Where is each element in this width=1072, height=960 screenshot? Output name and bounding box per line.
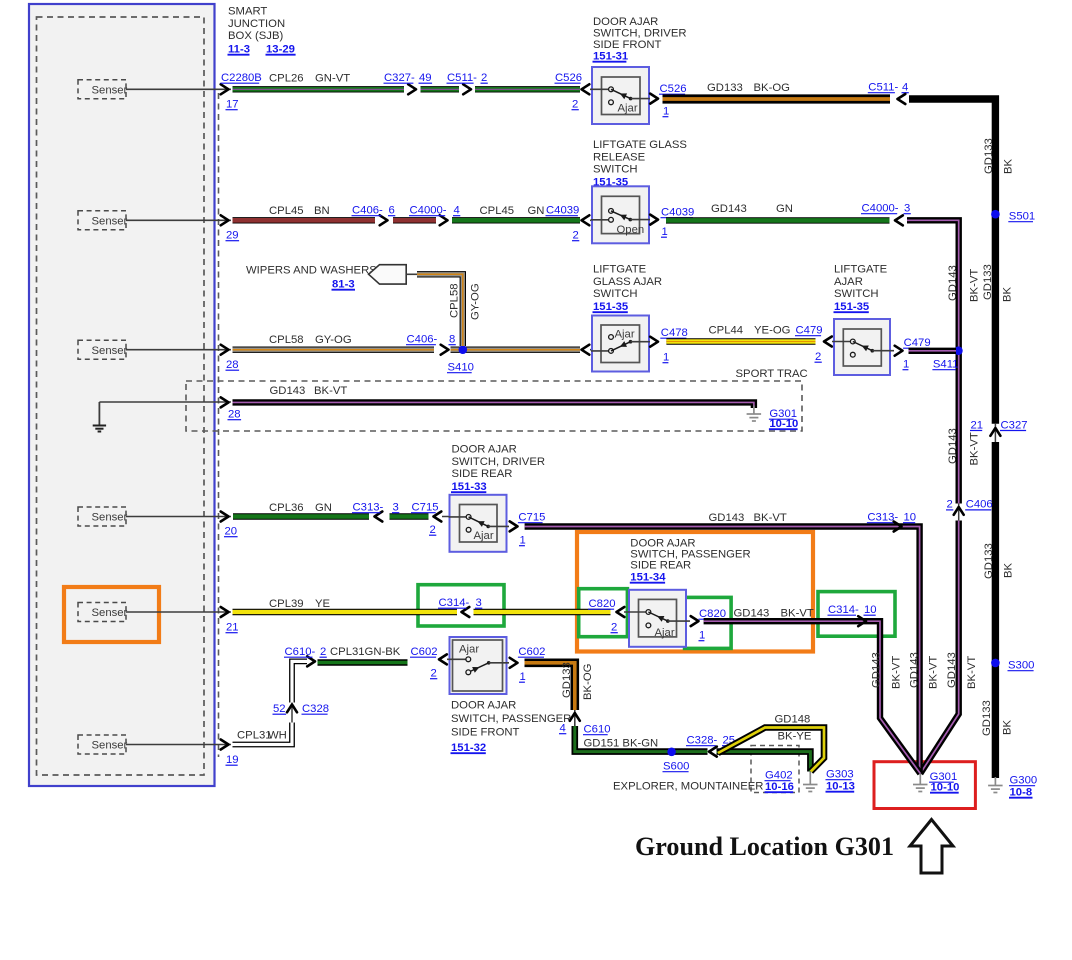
svg-text:SWITCH: SWITCH <box>593 164 638 176</box>
svg-text:1: 1 <box>663 352 669 364</box>
svg-text:BK-VT: BK-VT <box>314 385 347 397</box>
svg-text:GD133: GD133 <box>982 264 994 300</box>
svg-text:C479: C479 <box>796 325 823 337</box>
svg-text:EXPLORER, MOUNTAINEER: EXPLORER, MOUNTAINEER <box>613 781 763 793</box>
svg-text:Senser: Senser <box>92 85 128 97</box>
svg-text:151-34: 151-34 <box>630 572 666 584</box>
svg-text:GD143: GD143 <box>270 385 306 397</box>
svg-text:GD133: GD133 <box>981 700 993 736</box>
svg-text:Senser: Senser <box>92 512 128 524</box>
svg-text:G402: G402 <box>765 770 793 782</box>
svg-text:C610-: C610- <box>285 646 316 658</box>
svg-text:GD143: GD143 <box>734 608 770 620</box>
svg-text:BN: BN <box>314 205 330 217</box>
svg-text:13-29: 13-29 <box>266 44 295 56</box>
svg-text:S300: S300 <box>1008 660 1034 672</box>
svg-text:BK-VT: BK-VT <box>969 432 981 465</box>
svg-text:C511-: C511- <box>868 82 898 94</box>
svg-text:20: 20 <box>225 526 238 538</box>
svg-text:C314-: C314- <box>828 604 859 616</box>
svg-text:Ajar: Ajar <box>615 329 635 341</box>
svg-text:2: 2 <box>611 622 617 634</box>
svg-text:C4000-: C4000- <box>862 203 899 215</box>
svg-text:BK-VT: BK-VT <box>969 269 981 302</box>
svg-text:YE-OG: YE-OG <box>754 325 790 337</box>
svg-text:C602: C602 <box>411 646 438 658</box>
svg-text:SWITCH, PASSENGER: SWITCH, PASSENGER <box>451 713 571 725</box>
svg-text:CPL45: CPL45 <box>269 205 304 217</box>
svg-text:GY-OG: GY-OG <box>315 334 352 346</box>
svg-text:1: 1 <box>699 630 705 642</box>
svg-text:BOX (SJB): BOX (SJB) <box>228 30 283 42</box>
svg-text:LIFTGATE: LIFTGATE <box>593 264 647 276</box>
svg-text:C478: C478 <box>661 327 688 339</box>
svg-text:3: 3 <box>476 597 482 609</box>
svg-text:GN-VT: GN-VT <box>315 73 350 85</box>
svg-text:2: 2 <box>431 668 437 680</box>
svg-text:151-33: 151-33 <box>452 481 487 493</box>
svg-text:C4039: C4039 <box>661 207 694 219</box>
svg-text:GY-OG: GY-OG <box>470 283 482 320</box>
svg-text:YE: YE <box>315 598 331 610</box>
svg-text:10: 10 <box>864 604 877 616</box>
svg-text:GN: GN <box>776 203 793 215</box>
svg-text:BK: BK <box>1002 719 1014 735</box>
svg-text:C526: C526 <box>660 83 687 95</box>
svg-text:4: 4 <box>560 723 566 735</box>
svg-text:GD148: GD148 <box>775 714 811 726</box>
svg-text:DOOR AJAR: DOOR AJAR <box>593 16 658 28</box>
svg-text:LIFTGATE: LIFTGATE <box>834 264 888 276</box>
svg-text:4: 4 <box>902 82 908 94</box>
svg-text:Ajar: Ajar <box>618 103 638 115</box>
svg-text:Ajar: Ajar <box>655 627 675 639</box>
svg-text:81-3: 81-3 <box>332 279 355 291</box>
svg-text:C715: C715 <box>518 512 545 524</box>
svg-text:Senser: Senser <box>92 607 128 619</box>
svg-text:GD143: GD143 <box>946 652 958 688</box>
svg-text:BK-OG: BK-OG <box>582 664 594 700</box>
svg-text:RELEASE: RELEASE <box>593 151 646 163</box>
svg-text:10-8: 10-8 <box>1010 787 1033 799</box>
svg-text:21: 21 <box>971 419 984 431</box>
svg-text:C511-: C511- <box>447 72 477 84</box>
svg-text:GD143: GD143 <box>871 652 883 688</box>
svg-text:DOOR AJAR: DOOR AJAR <box>452 444 517 456</box>
svg-text:GD143: GD143 <box>709 512 745 524</box>
svg-text:CPL45: CPL45 <box>480 205 515 217</box>
svg-text:GD143: GD143 <box>711 203 747 215</box>
svg-text:C820: C820 <box>589 598 616 610</box>
svg-text:WIPERS AND WASHERS: WIPERS AND WASHERS <box>246 265 377 277</box>
svg-text:2: 2 <box>573 230 579 242</box>
svg-text:19: 19 <box>226 754 239 766</box>
svg-text:10-16: 10-16 <box>765 781 794 793</box>
svg-text:2: 2 <box>815 351 821 363</box>
svg-text:SIDE REAR: SIDE REAR <box>630 560 691 572</box>
svg-text:C406-: C406- <box>407 334 438 346</box>
svg-text:GLASS AJAR: GLASS AJAR <box>593 276 662 288</box>
svg-text:S410: S410 <box>448 362 474 374</box>
svg-text:151-32: 151-32 <box>451 742 486 754</box>
svg-text:3: 3 <box>904 203 910 215</box>
svg-text:Ajar: Ajar <box>459 644 479 656</box>
svg-text:17: 17 <box>226 99 239 111</box>
svg-text:SWITCH: SWITCH <box>593 288 638 300</box>
svg-text:BK-VT: BK-VT <box>966 656 978 689</box>
svg-text:GN: GN <box>528 205 545 217</box>
svg-text:4: 4 <box>454 205 460 217</box>
svg-text:GD133: GD133 <box>983 138 995 174</box>
svg-text:2: 2 <box>572 99 578 111</box>
svg-text:C328: C328 <box>302 703 329 715</box>
svg-text:BK-YE: BK-YE <box>778 731 812 743</box>
svg-text:BK-VT: BK-VT <box>891 656 903 689</box>
svg-text:CPL31GN-BK: CPL31GN-BK <box>330 646 401 658</box>
svg-text:SIDE FRONT: SIDE FRONT <box>593 39 662 51</box>
svg-text:BK-VT: BK-VT <box>754 512 787 524</box>
svg-text:3: 3 <box>393 502 399 514</box>
svg-text:S600: S600 <box>663 761 689 773</box>
svg-text:10-13: 10-13 <box>826 781 855 793</box>
svg-text:21: 21 <box>226 622 239 634</box>
svg-text:BK-VT: BK-VT <box>781 608 814 620</box>
svg-text:G300: G300 <box>1010 775 1038 787</box>
svg-text:C406: C406 <box>966 499 993 511</box>
svg-text:SWITCH, DRIVER: SWITCH, DRIVER <box>452 456 546 468</box>
svg-text:BK: BK <box>1003 158 1015 174</box>
svg-text:Senser: Senser <box>92 216 128 228</box>
svg-text:C479: C479 <box>904 337 931 349</box>
svg-text:CPL26: CPL26 <box>269 73 304 85</box>
svg-text:49: 49 <box>419 72 432 84</box>
svg-text:C526: C526 <box>555 72 582 84</box>
svg-text:DOOR AJAR: DOOR AJAR <box>451 700 516 712</box>
svg-text:Senser: Senser <box>92 740 128 752</box>
svg-text:1: 1 <box>903 359 909 371</box>
svg-text:C313-: C313- <box>353 502 384 514</box>
svg-text:BK-OG: BK-OG <box>754 82 790 94</box>
svg-text:C327-: C327- <box>384 72 415 84</box>
svg-text:Ground Location G301: Ground Location G301 <box>635 831 894 861</box>
svg-text:CPL58: CPL58 <box>448 283 460 318</box>
svg-text:S411: S411 <box>933 359 959 371</box>
svg-text:BK: BK <box>1002 286 1014 302</box>
svg-text:Open: Open <box>617 224 645 236</box>
svg-text:SMART: SMART <box>228 6 267 18</box>
svg-text:S501: S501 <box>1009 211 1035 223</box>
svg-text:C2280B: C2280B <box>221 72 262 84</box>
svg-text:8: 8 <box>449 334 455 346</box>
svg-text:C4039: C4039 <box>546 205 579 217</box>
svg-text:WH: WH <box>268 730 287 742</box>
svg-text:C602: C602 <box>518 646 545 658</box>
svg-text:CPL36: CPL36 <box>269 502 304 514</box>
svg-text:C406-: C406- <box>352 205 383 217</box>
svg-text:G303: G303 <box>826 769 854 781</box>
svg-text:JUNCTION: JUNCTION <box>228 18 285 30</box>
svg-text:28: 28 <box>226 359 239 371</box>
svg-text:SWITCH: SWITCH <box>834 288 879 300</box>
svg-text:GN: GN <box>315 502 332 514</box>
svg-text:SWITCH, DRIVER: SWITCH, DRIVER <box>593 28 687 40</box>
svg-text:CPL44: CPL44 <box>709 325 744 337</box>
svg-text:28: 28 <box>228 409 241 421</box>
svg-text:GD133: GD133 <box>983 543 995 579</box>
svg-text:LIFTGATE GLASS: LIFTGATE GLASS <box>593 139 687 151</box>
svg-text:C610: C610 <box>584 724 611 736</box>
svg-text:GD143: GD143 <box>909 652 921 688</box>
svg-text:GD133: GD133 <box>707 82 743 94</box>
svg-text:Senser: Senser <box>92 345 128 357</box>
svg-text:2: 2 <box>947 499 953 511</box>
svg-text:29: 29 <box>226 230 239 242</box>
svg-text:SPORT TRAC: SPORT TRAC <box>736 368 808 380</box>
svg-text:11-3: 11-3 <box>228 44 250 56</box>
svg-text:C328-: C328- <box>687 735 718 747</box>
svg-text:C4000-: C4000- <box>410 205 447 217</box>
svg-text:GD151 BK-GN: GD151 BK-GN <box>584 738 659 750</box>
svg-text:SIDE FRONT: SIDE FRONT <box>451 727 520 739</box>
svg-text:151-35: 151-35 <box>593 301 628 313</box>
svg-text:Ajar: Ajar <box>474 530 494 542</box>
svg-text:C314-: C314- <box>439 597 470 609</box>
svg-text:BK-VT: BK-VT <box>928 656 940 689</box>
svg-text:1: 1 <box>662 226 668 238</box>
svg-text:CPL39: CPL39 <box>269 598 304 610</box>
svg-text:2: 2 <box>430 524 436 536</box>
svg-text:2: 2 <box>320 646 326 658</box>
svg-text:1: 1 <box>663 106 669 118</box>
svg-text:C715: C715 <box>412 502 439 514</box>
svg-text:CPL31: CPL31 <box>237 730 272 742</box>
svg-text:6: 6 <box>389 205 395 217</box>
svg-text:151-31: 151-31 <box>593 51 628 63</box>
svg-text:CPL58: CPL58 <box>269 334 304 346</box>
svg-text:SIDE REAR: SIDE REAR <box>452 468 513 480</box>
svg-text:2: 2 <box>481 72 487 84</box>
svg-text:GD133: GD133 <box>561 662 573 698</box>
svg-text:52: 52 <box>273 703 286 715</box>
svg-text:10-10: 10-10 <box>931 782 960 794</box>
svg-text:AJAR: AJAR <box>834 276 863 288</box>
svg-text:10: 10 <box>904 512 917 524</box>
svg-text:C327: C327 <box>1001 419 1028 431</box>
svg-text:BK: BK <box>1003 562 1015 578</box>
svg-text:1: 1 <box>520 671 526 683</box>
svg-text:151-35: 151-35 <box>834 301 869 313</box>
svg-text:1: 1 <box>520 535 526 547</box>
svg-text:10-10: 10-10 <box>769 418 798 430</box>
